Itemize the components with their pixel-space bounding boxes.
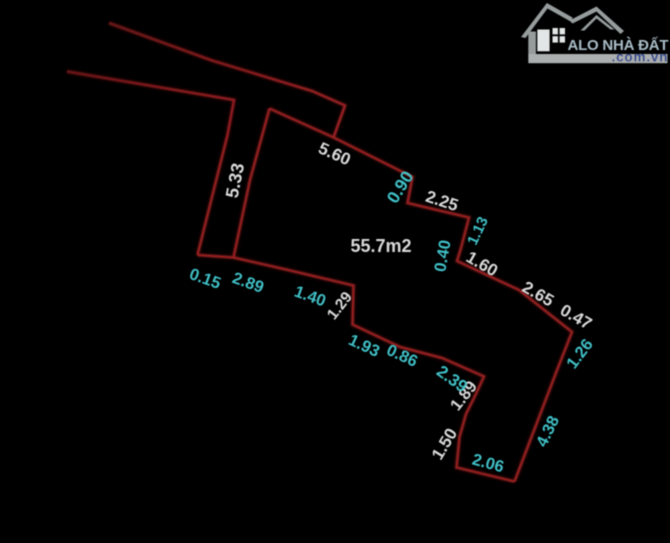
svg-text:55.7m2: 55.7m2 <box>350 236 411 256</box>
svg-text:.com.vn: .com.vn <box>612 50 668 65</box>
